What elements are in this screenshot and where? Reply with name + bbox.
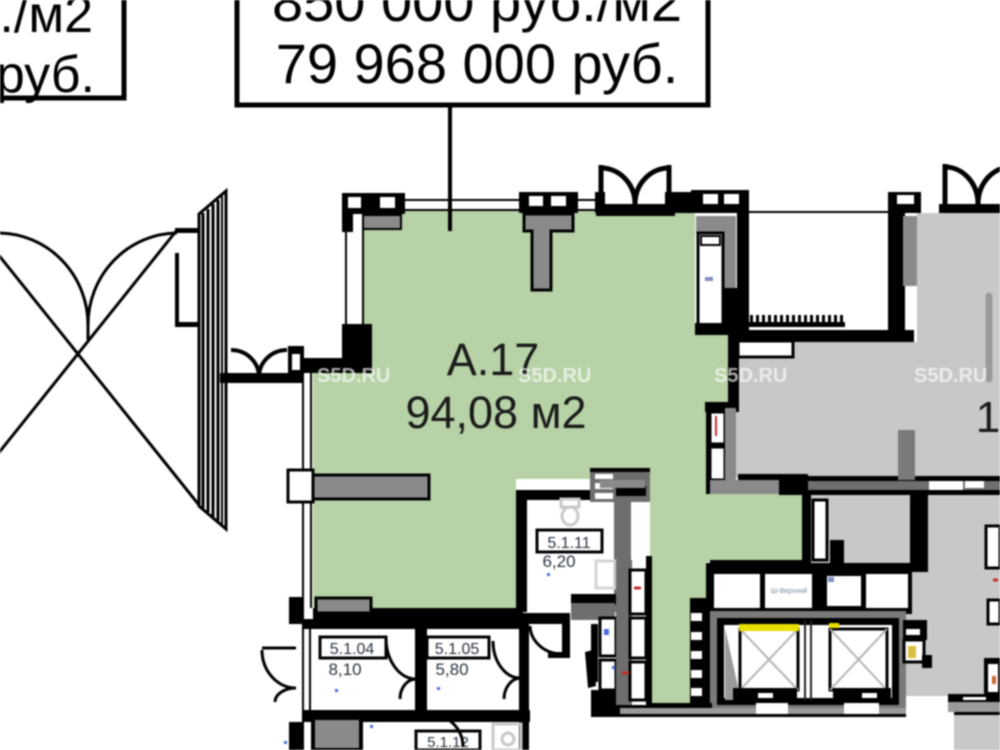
svg-text:8,10: 8,10 bbox=[328, 660, 361, 679]
svg-text:6,20: 6,20 bbox=[542, 552, 575, 571]
svg-text:94,08 м2: 94,08 м2 bbox=[405, 387, 586, 438]
svg-text:5.1.05: 5.1.05 bbox=[435, 641, 480, 658]
svg-text:Ш-Верхний: Ш-Верхний bbox=[771, 587, 807, 595]
svg-text:S5D.RU: S5D.RU bbox=[714, 365, 787, 387]
svg-text:руб.: руб. bbox=[0, 46, 95, 104]
svg-text:./м2: ./м2 bbox=[0, 0, 93, 44]
svg-text:S5D.RU: S5D.RU bbox=[317, 365, 390, 387]
svg-text:850 000 руб./м2: 850 000 руб./м2 bbox=[272, 0, 682, 33]
svg-text:5.1.04: 5.1.04 bbox=[330, 641, 375, 658]
svg-text:5.1.11: 5.1.11 bbox=[547, 535, 590, 552]
svg-text:S5D.RU: S5D.RU bbox=[518, 365, 591, 387]
svg-text:1: 1 bbox=[976, 393, 1000, 442]
svg-text:S5D.RU: S5D.RU bbox=[914, 365, 987, 387]
svg-text:79 968 000 руб.: 79 968 000 руб. bbox=[276, 32, 679, 95]
svg-text:5,80: 5,80 bbox=[435, 660, 468, 679]
